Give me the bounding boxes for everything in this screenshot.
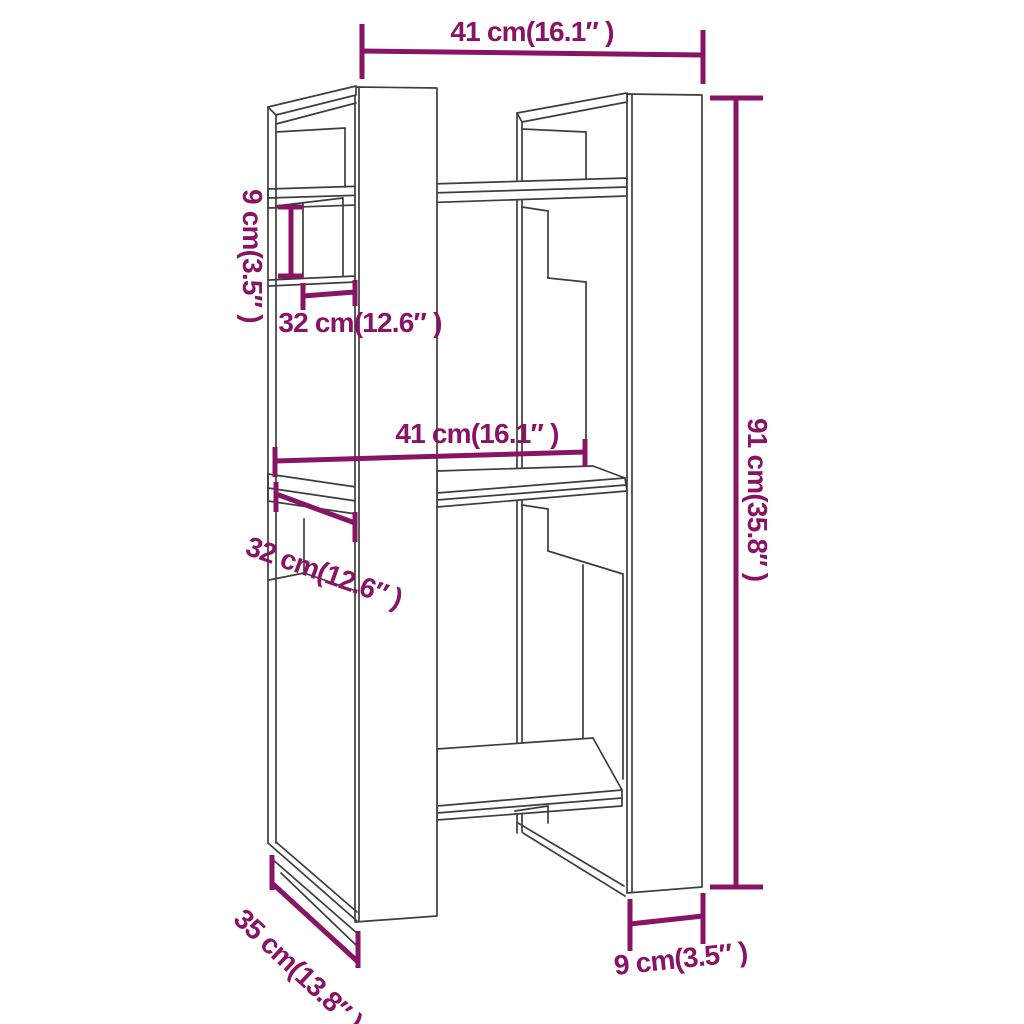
dimension-label-upper-back-width: 32 cm(12.6″ )	[278, 307, 441, 338]
dimension-panel-width: 9 cm(3.5″ )	[612, 893, 748, 981]
dimension-label-middle-width: 41 cm(16.1″ )	[395, 418, 558, 449]
dimension-label-panel-width: 9 cm(3.5″ )	[612, 936, 748, 981]
dimension-gap-height: 9 cm(3.5″ )	[237, 189, 303, 323]
center-panel	[355, 87, 437, 922]
base-rails	[515, 806, 625, 896]
upper-shelf	[268, 178, 627, 208]
top-right-board	[517, 93, 627, 122]
dimension-depth: 35 cm(13.8″ )	[228, 855, 369, 1024]
dimension-label-top-width: 41 cm(16.1″ )	[450, 16, 613, 47]
middle-shelf-right	[437, 466, 627, 507]
right-panel	[627, 94, 702, 893]
dimension-top-width: 41 cm(16.1″ )	[362, 16, 703, 84]
dimension-label-gap-height: 9 cm(3.5″ )	[237, 189, 268, 323]
furniture-dimension-drawing: 41 cm(16.1″ ) 91 cm(35.8″ ) 9 cm(3.5″ ) …	[0, 0, 1024, 1024]
top-left-board	[268, 86, 356, 187]
bottom-shelf	[437, 738, 622, 820]
left-back-panels	[269, 198, 356, 591]
dimension-label-height: 91 cm(35.8″ )	[742, 418, 773, 581]
dimension-label-depth: 35 cm(13.8″ )	[228, 903, 369, 1024]
right-back-panels	[522, 207, 623, 574]
left-side-panel	[268, 106, 358, 947]
dimension-height: 91 cm(35.8″ )	[710, 98, 773, 887]
dimension-diagram: 41 cm(16.1″ ) 91 cm(35.8″ ) 9 cm(3.5″ ) …	[0, 0, 1024, 1024]
